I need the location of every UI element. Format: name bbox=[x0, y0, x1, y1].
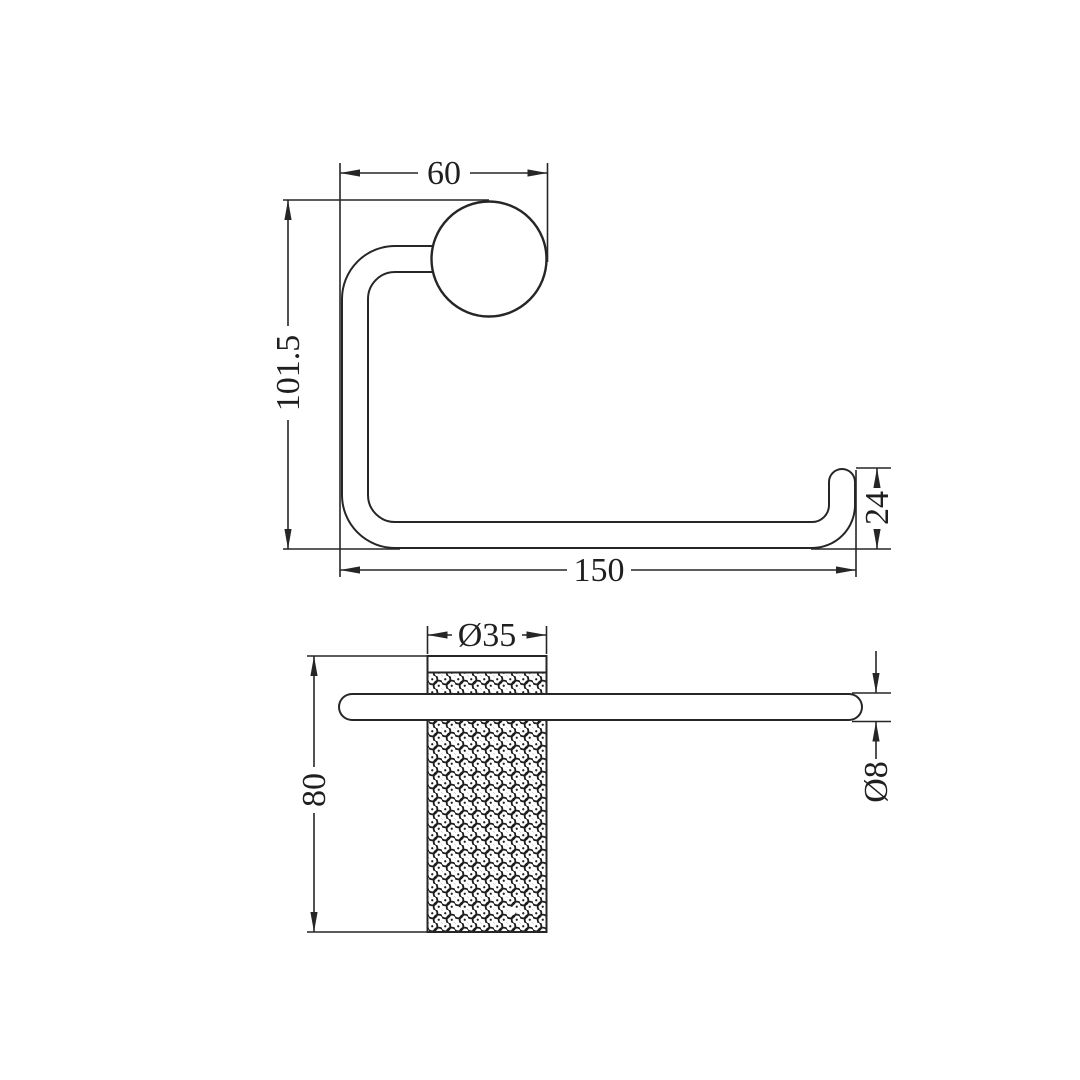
dim-label-hook-height: 24 bbox=[859, 491, 896, 525]
technical-drawing-canvas: 60 101.5 150 24 bbox=[0, 0, 1080, 1080]
dim-label-flange-offset: 60 bbox=[427, 155, 461, 192]
screw-hole-right bbox=[508, 907, 516, 915]
dim-label-flange-diameter: Ø35 bbox=[458, 617, 517, 654]
side-extension-lines bbox=[307, 626, 891, 932]
tube-outline-outer bbox=[355, 259, 842, 535]
dim-label-overall-height: 101.5 bbox=[270, 335, 307, 412]
dim-label-flange-length: 80 bbox=[296, 773, 333, 807]
dim-label-rail-diameter: Ø8 bbox=[858, 761, 895, 803]
post-top-rim bbox=[428, 656, 547, 673]
front-dimension-lines bbox=[288, 173, 877, 570]
dim-label-overall-length: 150 bbox=[574, 552, 625, 589]
drawing-svg: 60 101.5 150 24 bbox=[0, 0, 1080, 1080]
side-view: Ø35 80 Ø8 bbox=[296, 617, 895, 932]
screw-hole-left bbox=[454, 907, 462, 915]
wall-flange-circle bbox=[432, 202, 547, 317]
side-dimension-lines bbox=[314, 635, 876, 932]
side-dimension-arrows bbox=[310, 631, 879, 932]
front-view: 60 101.5 150 24 bbox=[270, 155, 896, 589]
tube-outline-inner bbox=[355, 259, 842, 535]
